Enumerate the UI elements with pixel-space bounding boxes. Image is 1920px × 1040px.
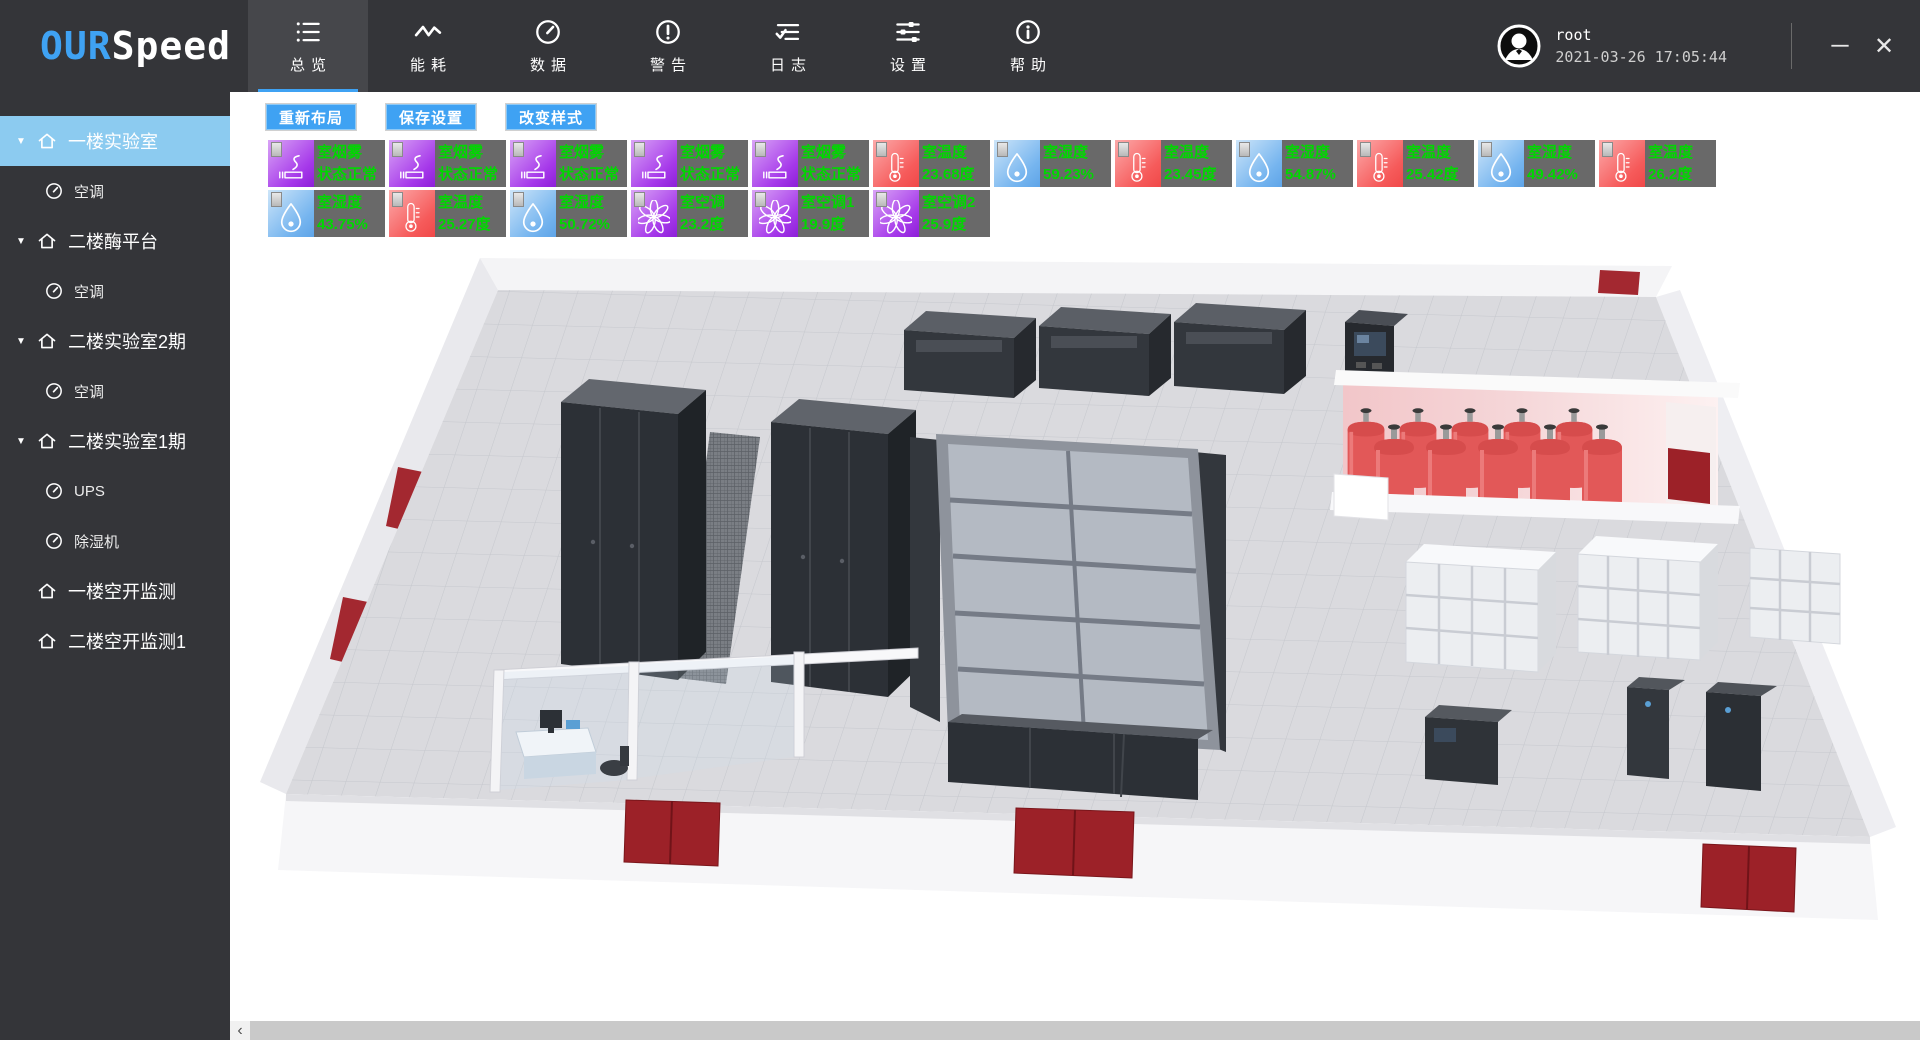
humidity-sensor-badge[interactable]: 室湿度 49.42% [1478, 140, 1595, 187]
cold-aisle-containment [910, 434, 1226, 800]
smoke-sensor-badge[interactable]: 室烟雾 状态正常 [268, 140, 385, 187]
nav-item-energy[interactable]: 能耗 [368, 0, 488, 92]
sidebar-item-label: 空调 [74, 181, 104, 202]
sidebar-item-label: 除湿机 [74, 531, 119, 552]
sidebar-item-label: UPS [74, 483, 105, 500]
thermometer-icon [873, 140, 919, 187]
badge-checkbox[interactable] [392, 192, 403, 207]
humidity-sensor-badge[interactable]: 室湿度 50.72% [510, 190, 627, 237]
badge-label: 室温度 [1648, 142, 1716, 164]
badge-checkbox[interactable] [997, 142, 1008, 157]
log-icon [773, 17, 803, 47]
humidity-sensor-badge[interactable]: 室湿度 54.87% [1236, 140, 1353, 187]
titlebar-divider [1791, 23, 1792, 69]
nav-item-alerts[interactable]: 警告 [608, 0, 728, 92]
badge-label: 室烟雾 [680, 142, 748, 164]
nav-label: 能耗 [410, 54, 452, 75]
badge-value: 43.75% [317, 214, 385, 236]
badge-value: 状态正常 [801, 164, 869, 186]
sidebar-item-label: 空调 [74, 281, 104, 302]
badge-value: 23.45度 [1164, 164, 1232, 186]
user-info: root 2021-03-26 17:05:44 [1555, 26, 1727, 66]
user-avatar-icon[interactable] [1497, 24, 1541, 68]
thermometer-icon [1115, 140, 1161, 187]
home-icon [36, 130, 58, 152]
badge-checkbox[interactable] [392, 142, 403, 157]
badge-checkbox[interactable] [876, 192, 887, 207]
sidebar-item-floor2-lab-p1-ups[interactable]: UPS [0, 466, 230, 516]
gauge-icon [44, 181, 64, 201]
chevron-down-icon: ▼ [16, 236, 30, 247]
badge-label: 室温度 [922, 142, 990, 164]
main-nav: 总览 能耗 数据 警告 日志 设置 帮助 [248, 0, 1088, 92]
badge-checkbox[interactable] [1481, 142, 1492, 157]
sidebar-item-floor2-lab-p1-dehum[interactable]: 除湿机 [0, 516, 230, 566]
badge-label: 室温度 [1406, 142, 1474, 164]
badge-value: 状态正常 [438, 164, 506, 186]
sidebar-item-label: 二楼实验室1期 [68, 428, 186, 454]
nav-label: 总览 [290, 54, 332, 75]
thermometer-icon [1357, 140, 1403, 187]
badge-label: 室温度 [1164, 142, 1232, 164]
badge-label: 室湿度 [559, 192, 627, 214]
temperature-sensor-badge[interactable]: 室温度 23.45度 [1115, 140, 1232, 187]
logo-text-primary: OUR [40, 24, 112, 68]
chevron-down-icon: ▼ [16, 136, 30, 147]
crac-units [904, 303, 1306, 398]
badge-checkbox[interactable] [634, 192, 645, 207]
gauge-icon [44, 381, 64, 401]
badge-checkbox[interactable] [1602, 142, 1613, 157]
gauge-icon [44, 281, 64, 301]
nav-label: 警告 [650, 54, 692, 75]
sidebar-item-label: 一楼实验室 [68, 128, 158, 154]
home-icon [36, 630, 58, 652]
badge-value: 23.2度 [680, 214, 748, 236]
badge-value: 状态正常 [680, 164, 748, 186]
user-name: root [1555, 26, 1727, 44]
badge-label: 室烟雾 [317, 142, 385, 164]
info-icon [1013, 17, 1043, 47]
fan-icon [752, 190, 798, 237]
home-icon [36, 230, 58, 252]
badge-checkbox[interactable] [271, 142, 282, 157]
nav-label: 设置 [890, 54, 932, 75]
badge-label: 室湿度 [317, 192, 385, 214]
save-settings-button[interactable]: 保存设置 [386, 104, 476, 130]
thermometer-icon [1599, 140, 1645, 187]
minimize-icon[interactable]: ─ [1818, 24, 1862, 68]
badge-checkbox[interactable] [1360, 142, 1371, 157]
smoke-sensor-badge[interactable]: 室烟雾 状态正常 [631, 140, 748, 187]
ac-sensor-badge[interactable]: 室空调2 25.9度 [873, 190, 990, 237]
top-right-area: root 2021-03-26 17:05:44 ─ ✕ [1497, 0, 1920, 92]
smoke-icon [752, 140, 798, 187]
gauge-icon [533, 17, 563, 47]
badge-checkbox[interactable] [755, 142, 766, 157]
fire-suppression-room [1330, 370, 1740, 524]
sidebar-item-floor1-breaker[interactable]: 一楼空开监测 [0, 566, 230, 616]
warning-icon [653, 17, 683, 47]
room-3d-drawing [248, 252, 1908, 1014]
layout-toolbar: 重新布局保存设置改变样式 [266, 104, 596, 130]
sidebar-item-label: 二楼酶平台 [68, 228, 158, 254]
relayout-button[interactable]: 重新布局 [266, 104, 356, 130]
badge-value: 23.68度 [922, 164, 990, 186]
droplet-icon [1478, 140, 1524, 187]
smoke-sensor-badge[interactable]: 室烟雾 状态正常 [510, 140, 627, 187]
smoke-icon [268, 140, 314, 187]
badge-label: 室湿度 [1527, 142, 1595, 164]
change-style-button[interactable]: 改变样式 [506, 104, 596, 130]
sliders-icon [893, 17, 923, 47]
scroll-left-icon[interactable]: ‹ [230, 1021, 250, 1040]
badge-checkbox[interactable] [1239, 142, 1250, 157]
droplet-icon [268, 190, 314, 237]
server-rack-row-a [561, 379, 706, 680]
badge-label: 室烟雾 [559, 142, 627, 164]
gauge-icon [44, 481, 64, 501]
home-icon [36, 430, 58, 452]
sidebar-item-floor2-breaker[interactable]: 二楼空开监测1 [0, 616, 230, 666]
badge-label: 室湿度 [1043, 142, 1111, 164]
sidebar-item-label: 二楼实验室2期 [68, 328, 186, 354]
badge-checkbox[interactable] [755, 192, 766, 207]
badge-checkbox[interactable] [1118, 142, 1129, 157]
humidity-sensor-badge[interactable]: 室湿度 59.23% [994, 140, 1111, 187]
nav-item-help[interactable]: 帮助 [968, 0, 1088, 92]
app-logo: OUR Speed [0, 0, 230, 92]
sidebar-item-label: 一楼空开监测 [68, 578, 176, 604]
nav-label: 日志 [770, 54, 812, 75]
ac-sensor-badge[interactable]: 室空调 23.2度 [631, 190, 748, 237]
nav-label: 数据 [530, 54, 572, 75]
smoke-icon [510, 140, 556, 187]
gauge-icon [44, 531, 64, 551]
badge-checkbox[interactable] [271, 192, 282, 207]
close-icon[interactable]: ✕ [1862, 24, 1906, 68]
scrollbar-thumb[interactable] [250, 1021, 1920, 1040]
smoke-icon [631, 140, 677, 187]
badge-value: 26.2度 [1648, 164, 1716, 186]
temperature-sensor-badge[interactable]: 室温度 23.68度 [873, 140, 990, 187]
main-content: 重新布局保存设置改变样式 室烟雾 状态正常 室烟雾 状态正常 室烟雾 状态正常 … [230, 92, 1920, 1040]
sidebar-item-floor1-lab[interactable]: ▼ 一楼实验室 [0, 116, 230, 166]
temperature-sensor-badge[interactable]: 室温度 26.2度 [1599, 140, 1716, 187]
home-icon [36, 330, 58, 352]
top-bar: OUR Speed 总览 能耗 数据 警告 日志 设置 帮助 r [0, 0, 1920, 92]
home-icon [36, 580, 58, 602]
room-3d-view [248, 252, 1908, 1014]
current-timestamp: 2021-03-26 17:05:44 [1555, 48, 1727, 66]
sidebar-item-floor2-enzyme-ac[interactable]: 空调 [0, 266, 230, 316]
badge-checkbox[interactable] [513, 142, 524, 157]
nav-item-data[interactable]: 数据 [488, 0, 608, 92]
badge-label: 室烟雾 [801, 142, 869, 164]
smoke-sensor-badge[interactable]: 室烟雾 状态正常 [389, 140, 506, 187]
badge-value: 54.87% [1285, 164, 1353, 186]
badge-checkbox[interactable] [513, 192, 524, 207]
ac-sensor-badge[interactable]: 室空调1 19.9度 [752, 190, 869, 237]
sensor-badge-strip: 室烟雾 状态正常 室烟雾 状态正常 室烟雾 状态正常 室烟雾 状态正常 [268, 140, 1734, 237]
badge-label: 室湿度 [1285, 142, 1353, 164]
droplet-icon [510, 190, 556, 237]
badge-value: 25.9度 [922, 214, 990, 236]
badge-label: 室空调 [680, 192, 748, 214]
nav-item-logs[interactable]: 日志 [728, 0, 848, 92]
temperature-sensor-badge[interactable]: 室温度 25.42度 [1357, 140, 1474, 187]
badge-value: 状态正常 [317, 164, 385, 186]
chevron-down-icon: ▼ [16, 436, 30, 447]
sidebar-item-floor2-lab-phase2[interactable]: ▼ 二楼实验室2期 [0, 316, 230, 366]
nav-item-overview[interactable]: 总览 [248, 0, 368, 92]
list-icon [293, 17, 323, 47]
nav-item-settings[interactable]: 设置 [848, 0, 968, 92]
badge-checkbox[interactable] [876, 142, 887, 157]
nav-label: 帮助 [1010, 54, 1052, 75]
badge-value: 19.9度 [801, 214, 869, 236]
badge-value: 状态正常 [559, 164, 627, 186]
temperature-sensor-badge[interactable]: 室温度 25.27度 [389, 190, 506, 237]
sidebar-item-floor1-lab-ac[interactable]: 空调 [0, 166, 230, 216]
badge-label: 室空调1 [801, 192, 869, 214]
badge-value: 25.42度 [1406, 164, 1474, 186]
badge-value: 49.42% [1527, 164, 1595, 186]
sidebar-item-floor2-enzyme[interactable]: ▼ 二楼酶平台 [0, 216, 230, 266]
logo-text-secondary: Speed [112, 24, 231, 68]
badge-label: 室空调2 [922, 192, 990, 214]
badge-value: 59.23% [1043, 164, 1111, 186]
smoke-sensor-badge[interactable]: 室烟雾 状态正常 [752, 140, 869, 187]
smoke-icon [389, 140, 435, 187]
thermometer-icon [389, 190, 435, 237]
sidebar-item-floor2-lab-p2-ac[interactable]: 空调 [0, 366, 230, 416]
chevron-down-icon: ▼ [16, 336, 30, 347]
sidebar-item-label: 空调 [74, 381, 104, 402]
pulse-icon [413, 17, 443, 47]
badge-value: 25.27度 [438, 214, 506, 236]
sidebar-item-label: 二楼空开监测1 [68, 628, 186, 654]
fan-icon [631, 190, 677, 237]
humidity-sensor-badge[interactable]: 室湿度 43.75% [268, 190, 385, 237]
sidebar-item-floor2-lab-phase1[interactable]: ▼ 二楼实验室1期 [0, 416, 230, 466]
badge-label: 室温度 [438, 192, 506, 214]
badge-value: 50.72% [559, 214, 627, 236]
droplet-icon [1236, 140, 1282, 187]
droplet-icon [994, 140, 1040, 187]
badge-checkbox[interactable] [634, 142, 645, 157]
badge-label: 室烟雾 [438, 142, 506, 164]
sidebar: ▼ 一楼实验室 空调 ▼ 二楼酶平台 空调 ▼ 二楼实验室2期 空调 ▼ 二楼实… [0, 92, 230, 1040]
fan-icon [873, 190, 919, 237]
horizontal-scrollbar: ‹ [230, 1021, 1920, 1040]
